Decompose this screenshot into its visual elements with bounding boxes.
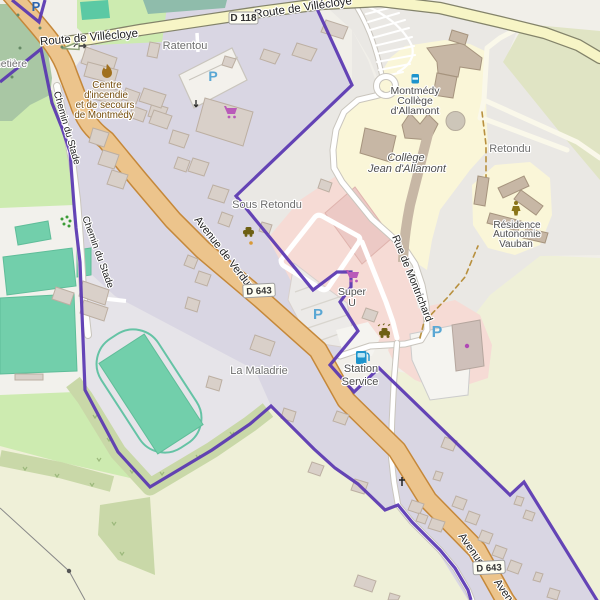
svg-text:d'Allamont: d'Allamont [391, 105, 440, 117]
svg-text:Service: Service [342, 376, 379, 388]
svg-text:Sous Retondu: Sous Retondu [232, 199, 302, 211]
svg-text:de Montmédy: de Montmédy [74, 110, 133, 121]
svg-text:U: U [348, 297, 356, 309]
svg-text:La Maladrie: La Maladrie [230, 365, 287, 377]
svg-text:Station: Station [344, 363, 378, 375]
svg-text:Ratentou: Ratentou [163, 40, 208, 52]
svg-text:P: P [313, 306, 323, 323]
svg-text:D 118: D 118 [230, 13, 257, 24]
svg-text:Retondu: Retondu [489, 143, 531, 155]
svg-text:P: P [208, 68, 217, 84]
svg-text:P: P [32, 0, 41, 14]
svg-text:P: P [432, 324, 443, 341]
svg-text:D 643: D 643 [246, 285, 272, 297]
svg-text:netière: netière [0, 58, 27, 70]
svg-text:Vauban: Vauban [499, 239, 533, 250]
svg-text:D 643: D 643 [476, 562, 502, 574]
svg-text:Jean d'Allamont: Jean d'Allamont [367, 163, 447, 175]
